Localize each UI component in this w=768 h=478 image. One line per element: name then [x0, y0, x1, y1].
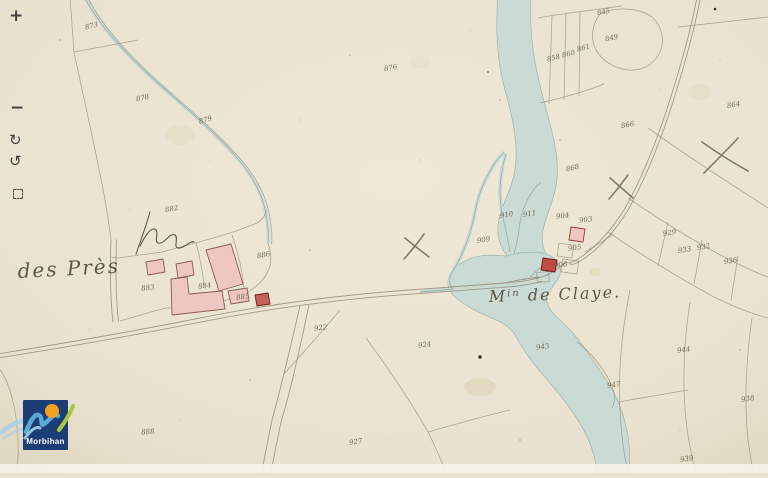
- ink-dot: [478, 355, 481, 358]
- map-viewer: 8738788798768458588608618498648668688828…: [0, 0, 768, 473]
- ink-dot: [487, 71, 489, 73]
- map-canvas[interactable]: 8738788798768458588608618498648668688828…: [0, 0, 768, 473]
- morbihan-logo: Morbihan: [0, 394, 82, 462]
- mill-building: [569, 227, 585, 242]
- zoom-extent-icon[interactable]: [13, 189, 23, 199]
- ink-dot: [714, 8, 717, 11]
- rotate-cw-icon[interactable]: ↻: [9, 133, 22, 148]
- parcel-number: 888: [141, 428, 155, 437]
- logo-text: Morbihan: [26, 437, 64, 446]
- zoom-in-button[interactable]: +: [9, 8, 23, 25]
- building-red-small: [255, 293, 270, 306]
- rotate-ccw-icon[interactable]: ↺: [9, 154, 22, 169]
- parcel-number: 885: [236, 292, 251, 301]
- map-sheet-edge: [0, 464, 768, 473]
- logo-sun: [45, 404, 59, 418]
- parcel-number: 883: [141, 283, 156, 292]
- zoom-out-button[interactable]: −: [10, 100, 24, 117]
